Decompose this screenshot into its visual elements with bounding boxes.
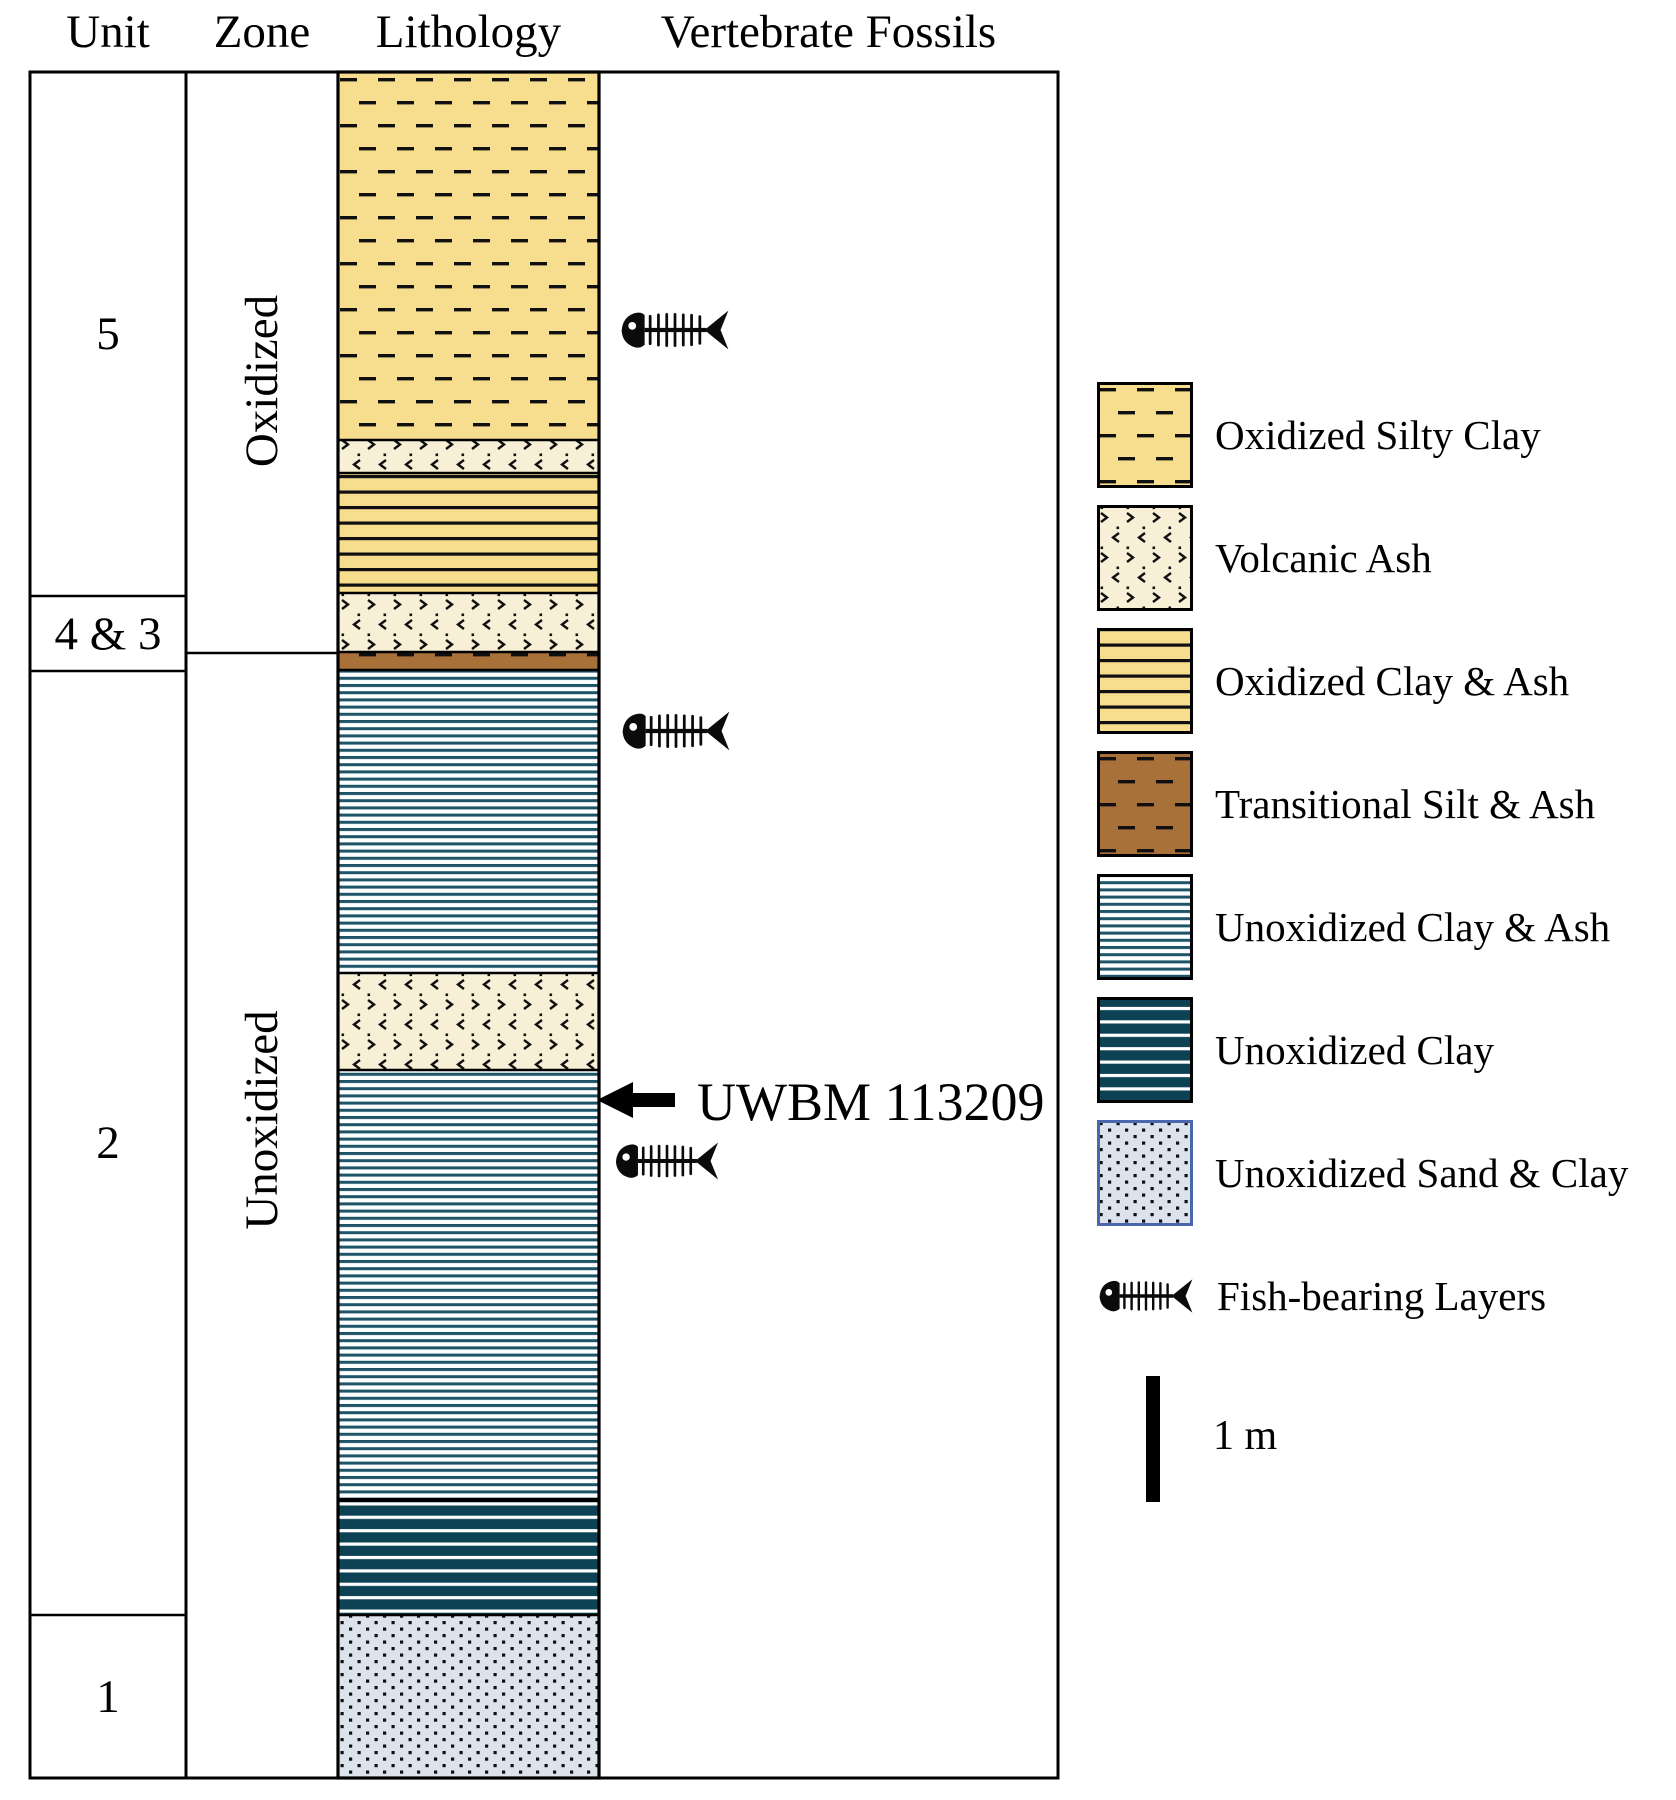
layer-unoxidized-clay-ash-lower — [338, 1070, 599, 1500]
legend-label: Volcanic Ash — [1215, 534, 1432, 582]
layer-unoxidized-clay-ash-upper — [338, 670, 599, 973]
layer-volcanic-ash-mid-upper — [338, 593, 599, 652]
zone-label-oxidized: Oxidized — [235, 295, 289, 467]
unit-cell-2: 2 — [30, 671, 186, 1615]
lithology-column — [338, 72, 599, 1778]
unit-cell-4-3: 4 & 3 — [30, 596, 186, 671]
legend-label: Fish-bearing Layers — [1217, 1272, 1546, 1320]
legend-item-fish-bearing-layers: Fish-bearing Layers — [1097, 1243, 1667, 1349]
unit-cell-5: 5 — [30, 72, 186, 596]
legend-item-transitional-silt-ash: Transitional Silt & Ash — [1097, 751, 1667, 857]
zone-label-unoxidized: Unoxidized — [235, 1010, 289, 1229]
fish-skeleton-icon-marker-3 — [616, 1143, 718, 1180]
legend-label: Transitional Silt & Ash — [1215, 780, 1595, 828]
legend-item-unoxidized-sand-clay: Unoxidized Sand & Clay — [1097, 1120, 1667, 1226]
legend-swatch-unoxidized-sand-clay — [1097, 1120, 1193, 1226]
scale-bar — [1146, 1376, 1160, 1502]
legend-label: Oxidized Silty Clay — [1215, 411, 1541, 459]
legend-swatch-unoxidized-clay — [1097, 997, 1193, 1103]
legend-label: Unoxidized Clay & Ash — [1215, 903, 1610, 951]
legend-label: Oxidized Clay & Ash — [1215, 657, 1569, 705]
layer-transitional-silt-ash — [338, 652, 599, 670]
legend-swatch-unoxidized-clay-ash — [1097, 874, 1193, 980]
layer-oxidized-silty-clay — [338, 72, 599, 440]
legend-label: Unoxidized Sand & Clay — [1215, 1149, 1628, 1197]
unit-cell-1: 1 — [30, 1615, 186, 1778]
legend-item-volcanic-ash: Volcanic Ash — [1097, 505, 1667, 611]
legend-swatch-transitional-silt-ash — [1097, 751, 1193, 857]
legend-item-oxidized-clay-ash: Oxidized Clay & Ash — [1097, 628, 1667, 734]
legend-label: Unoxidized Clay — [1215, 1026, 1494, 1074]
legend-swatch-oxidized-silty-clay — [1097, 382, 1193, 488]
specimen-arrow-icon — [597, 1082, 675, 1118]
layer-unoxidized-clay — [338, 1500, 599, 1615]
layer-oxidized-clay-ash — [338, 473, 599, 593]
legend-item-unoxidized-clay: Unoxidized Clay — [1097, 997, 1667, 1103]
column-header-unit: Unit — [30, 6, 186, 58]
column-header-fossils: Vertebrate Fossils — [599, 6, 1058, 58]
specimen-label: UWBM 113209 — [697, 1071, 1045, 1133]
legend-swatch-volcanic-ash — [1097, 505, 1193, 611]
legend-item-unoxidized-clay-ash: Unoxidized Clay & Ash — [1097, 874, 1667, 980]
layer-volcanic-ash-upper — [338, 440, 599, 473]
fish-skeleton-icon-legend — [1097, 1243, 1195, 1349]
fish-skeleton-icon-marker-2 — [623, 712, 730, 751]
layer-unoxidized-sand-clay — [338, 1615, 599, 1778]
legend-swatch-oxidized-clay-ash — [1097, 628, 1193, 734]
scale-bar-label: 1 m — [1213, 1412, 1277, 1460]
stratigraphic-column-figure: Unit Zone Lithology Vertebrate Fossils 5… — [0, 0, 1676, 1800]
legend-item-oxidized-silty-clay: Oxidized Silty Clay — [1097, 382, 1667, 488]
layer-volcanic-ash-middle — [338, 973, 599, 1070]
fish-skeleton-icon-marker-1 — [622, 311, 729, 350]
column-header-lithology: Lithology — [338, 6, 599, 58]
column-header-zone: Zone — [186, 6, 338, 58]
